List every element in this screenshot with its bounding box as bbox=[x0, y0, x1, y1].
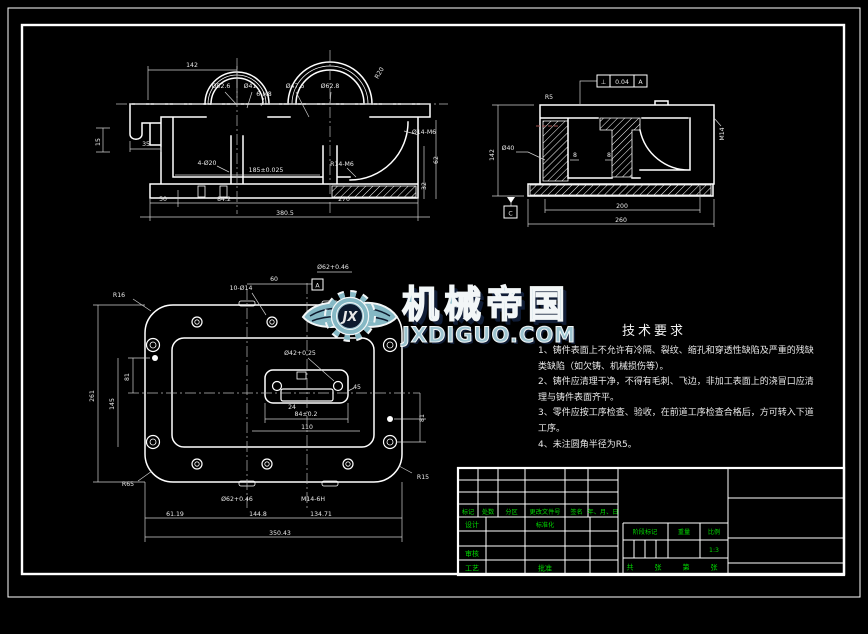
dim-label: 350.43 bbox=[269, 530, 291, 537]
rev-col-date: 年、月、日 bbox=[588, 508, 619, 516]
dim-label: 142 bbox=[489, 149, 496, 161]
dim-label: 35 bbox=[142, 141, 150, 148]
tech-req-line: 类缺陷（如欠铸、机械损伤等）。 bbox=[538, 360, 770, 376]
tech-req-line: 2、铸件应清理干净，不得有毛刺、飞边，非加工表面上的浇冒口应清 bbox=[538, 375, 770, 391]
scale-value: 1:3 bbox=[709, 547, 719, 554]
weight-label: 重量 bbox=[678, 528, 690, 536]
role-standardize: 标准化 bbox=[536, 521, 555, 529]
side-view: ⊥ 0.04 A C R5 142 Ø40 8 8 M14 200 260 bbox=[489, 75, 726, 227]
dim-label: 261 bbox=[89, 390, 96, 402]
pages-no-label: 第 bbox=[683, 563, 690, 572]
dim-label: M14 bbox=[719, 127, 726, 140]
stage-mark-label: 阶段标记 bbox=[633, 528, 658, 536]
dim-label: 61.19 bbox=[166, 511, 184, 518]
dim-label: 81 bbox=[419, 414, 426, 422]
cad-drawing-sheet: 142 Ø52.6 Ø41 6-M8 Ø47.6 Ø62.8 R20 15 35… bbox=[0, 0, 868, 634]
technical-requirements: 技术要求 1、铸件表面上不允许有冷隔、裂纹、缩孔和穿透性缺陷及严重的残缺 类缺陷… bbox=[538, 320, 770, 453]
datum-a: A bbox=[312, 279, 323, 290]
pages-sheet-label: 张 bbox=[655, 563, 662, 572]
front-view: 142 Ø52.6 Ø41 6-M8 Ø47.6 Ø62.8 R20 15 35… bbox=[95, 50, 448, 221]
dim-label: 84±0.2 bbox=[295, 411, 318, 418]
tech-req-line: 4、未注圆角半径为R5。 bbox=[538, 438, 770, 454]
dim-label: 8 bbox=[573, 152, 577, 159]
dim-label: R16 bbox=[113, 292, 125, 299]
dim-label: 145 bbox=[109, 398, 116, 410]
bolt-hole-section bbox=[198, 186, 205, 197]
tolerance-value: 0.04 bbox=[615, 79, 629, 86]
dim-label: Ø47.6 bbox=[286, 82, 305, 90]
dim-label: 24 bbox=[288, 404, 296, 411]
hatch-area bbox=[530, 185, 711, 195]
dim-label: 142 bbox=[186, 62, 198, 69]
dim-label: M14-6H bbox=[301, 496, 325, 503]
hatch-area bbox=[600, 118, 640, 177]
tech-req-line: 3、零件应按工序检查、验收，在前道工序检查合格后，方可转入下道 bbox=[538, 406, 770, 422]
title-block: 标记 处数 分区 更改文件号 签名 年、月、日 设计 标准化 审核 工艺 批准 … bbox=[458, 468, 844, 575]
dim-label: 15 bbox=[95, 138, 102, 146]
dim-label: 4-Ø20 bbox=[198, 159, 217, 167]
tech-req-line: 理与铸件表面齐平。 bbox=[538, 391, 770, 407]
dim-label: 10-Ø14 bbox=[230, 284, 253, 292]
dim-label: 62 bbox=[433, 156, 440, 164]
scale-label: 比例 bbox=[708, 528, 720, 536]
tech-req-line: 1、铸件表面上不允许有冷隔、裂纹、缩孔和穿透性缺陷及严重的残缺 bbox=[538, 344, 770, 360]
rev-col-zone: 分区 bbox=[505, 508, 517, 516]
datum-label: A bbox=[315, 283, 320, 290]
rev-col-mark: 标记 bbox=[462, 508, 474, 516]
technical-requirements-title: 技术要求 bbox=[538, 320, 770, 339]
dim-label: Ø62.8 bbox=[321, 82, 340, 90]
dim-label: R5 bbox=[545, 94, 553, 101]
dim-label: Ø42+0.25 bbox=[284, 349, 316, 357]
dim-label: 8 bbox=[607, 152, 611, 159]
dim-label: Ø62+0.46 bbox=[317, 263, 349, 271]
pages-total-label: 共 bbox=[627, 563, 634, 572]
dim-label: 144.8 bbox=[249, 511, 267, 518]
dim-label: Ø14-M6 bbox=[412, 128, 436, 136]
dim-label: 110 bbox=[301, 424, 313, 431]
dim-label: 81 bbox=[124, 373, 131, 381]
plan-view: A R16 10-Ø14 60 Ø62+0.46 81 145 261 Ø42+… bbox=[89, 263, 429, 542]
drawing-canvas: 142 Ø52.6 Ø41 6-M8 Ø47.6 Ø62.8 R20 15 35… bbox=[0, 0, 868, 634]
tolerance-frame: ⊥ 0.04 A bbox=[597, 75, 647, 87]
dim-label: R65 bbox=[122, 481, 134, 488]
dim-label: 50 bbox=[159, 196, 167, 203]
dim-label: Ø41 bbox=[244, 82, 257, 90]
dim-label: 260 bbox=[615, 217, 627, 224]
center-boss bbox=[265, 370, 348, 403]
hatch-area bbox=[543, 121, 568, 181]
role-process: 工艺 bbox=[465, 565, 479, 573]
role-audit: 审核 bbox=[465, 549, 479, 558]
rev-col-count: 处数 bbox=[482, 508, 495, 516]
pages-sheet-label2: 张 bbox=[711, 563, 718, 572]
dim-label: 270 bbox=[338, 196, 350, 203]
role-approve: 批准 bbox=[538, 564, 552, 573]
tech-req-line: 工序。 bbox=[538, 422, 770, 438]
rev-col-sign: 签名 bbox=[570, 508, 582, 516]
tolerance-datum-ref: A bbox=[638, 79, 643, 86]
dim-label: Ø52.6 bbox=[212, 82, 231, 90]
dim-label: 32 bbox=[421, 182, 428, 190]
dim-label: R20 bbox=[374, 66, 386, 80]
dim-label: 60 bbox=[270, 276, 278, 283]
tolerance-symbol: ⊥ bbox=[601, 79, 606, 86]
dim-label: Ø62+0.46 bbox=[221, 495, 253, 503]
dim-label: 6-M8 bbox=[256, 91, 272, 98]
dim-label: 45 bbox=[353, 384, 361, 391]
sheet-frame bbox=[8, 8, 860, 597]
datum-c: C bbox=[504, 197, 517, 218]
role-design: 设计 bbox=[465, 520, 479, 529]
dim-label: Ø40 bbox=[502, 144, 515, 152]
dim-label: R14-M6 bbox=[330, 161, 354, 168]
dim-label: R15 bbox=[417, 474, 429, 481]
dim-label: 134.71 bbox=[310, 511, 332, 518]
dim-label: 185±0.025 bbox=[249, 167, 284, 174]
rev-col-docno: 更改文件号 bbox=[530, 508, 561, 516]
dim-label: 200 bbox=[616, 203, 628, 210]
dim-label: 380.5 bbox=[276, 210, 294, 217]
dim-label: 84.2 bbox=[217, 196, 231, 203]
datum-label: C bbox=[508, 211, 512, 218]
